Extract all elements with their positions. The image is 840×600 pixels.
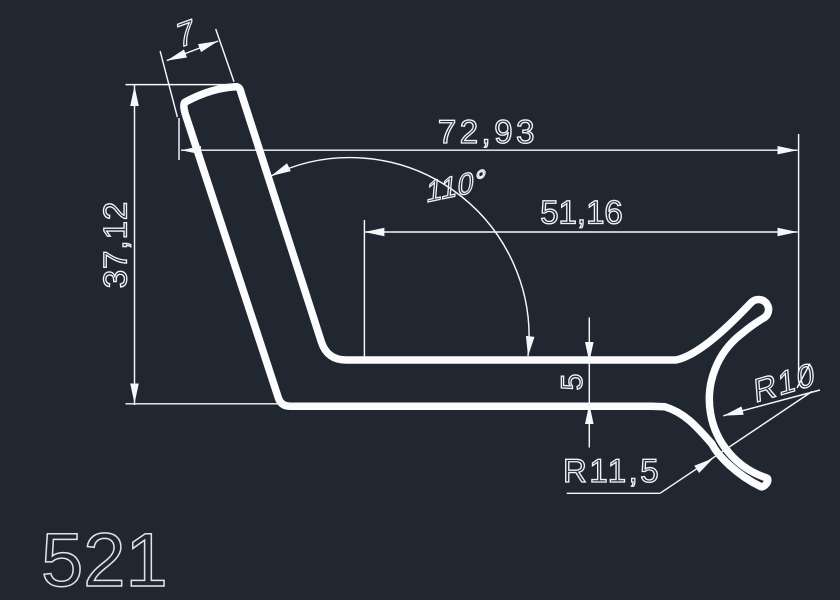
svg-text:72,93: 72,93 <box>438 113 538 150</box>
svg-text:51,16: 51,16 <box>540 194 623 231</box>
svg-text:521: 521 <box>41 518 168 600</box>
svg-text:5: 5 <box>556 374 589 391</box>
svg-text:37,12: 37,12 <box>97 201 134 289</box>
svg-text:R11,5: R11,5 <box>563 452 661 489</box>
